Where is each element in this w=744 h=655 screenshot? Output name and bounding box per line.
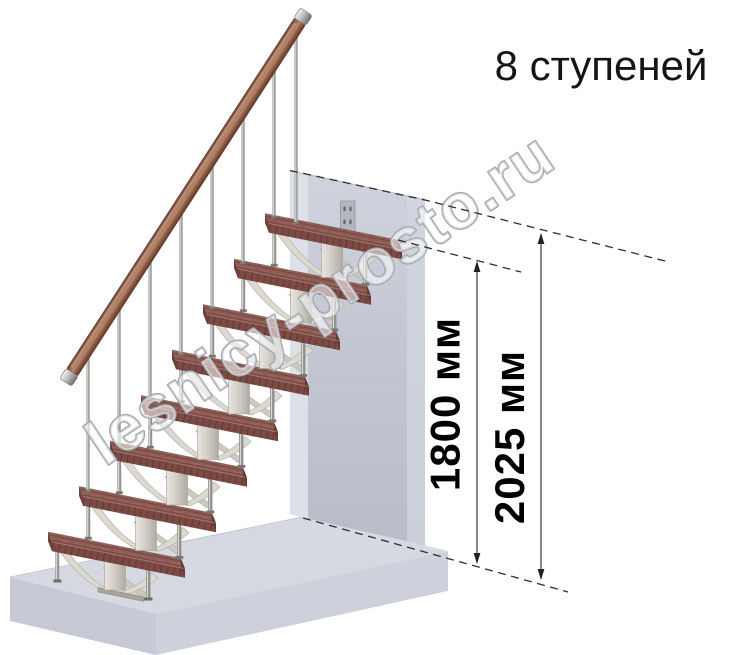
dimension-2025: 2025 мм bbox=[486, 233, 544, 580]
staircase-diagram: lesnicy-prosto.ru 1800 мм 2025 мм 8 ступ… bbox=[0, 0, 744, 655]
staircase-diagram-page: lesnicy-prosto.ru 1800 мм 2025 мм 8 ступ… bbox=[0, 0, 744, 655]
baluster bbox=[240, 114, 246, 264]
dimension-1800: 1800 мм bbox=[422, 261, 481, 564]
page-title: 8 ступеней bbox=[495, 42, 708, 89]
arrow-down-icon bbox=[538, 569, 545, 580]
dim-label-1800: 1800 мм bbox=[422, 317, 469, 491]
dim-label-2025: 2025 мм bbox=[486, 350, 533, 524]
arrow-up-icon bbox=[538, 233, 545, 244]
arrow-down-icon bbox=[474, 553, 481, 564]
baluster bbox=[271, 66, 277, 218]
arrow-up-icon bbox=[474, 261, 481, 272]
baluster bbox=[209, 162, 215, 309]
baluster bbox=[178, 210, 184, 355]
